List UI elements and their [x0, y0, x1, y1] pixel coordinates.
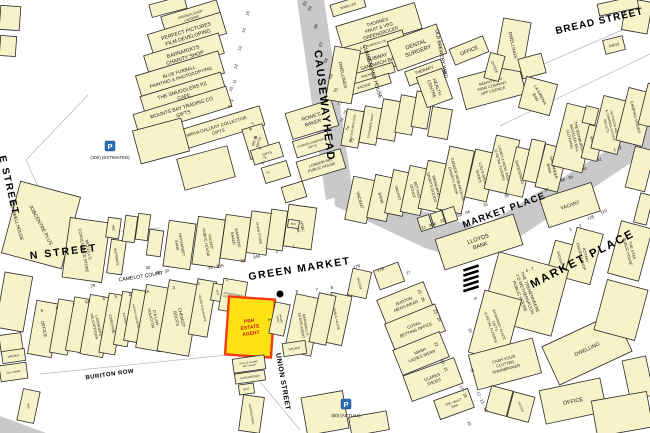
building-unlabeled [0, 5, 21, 30]
street-number: 7 [315, 287, 319, 292]
building-old-bank: OLD BANK [0, 362, 28, 382]
goad-retail-map: FASHION SHOPLINGERIEPERFECT PICTURESFILM… [0, 0, 650, 433]
junction-dot-marker [277, 291, 284, 298]
building-unlabeled [634, 193, 650, 225]
building-office: OFFICE [449, 36, 489, 65]
street-number: 34A [253, 253, 261, 259]
street-number: 30 [145, 265, 151, 271]
street-number: 10 - 11 [228, 78, 238, 92]
street-label-union-street: UNION STREET [274, 353, 291, 412]
building-vac: VAC [106, 217, 122, 239]
street-label-camelot-court: CAMELOT COURT [118, 270, 164, 283]
building-dwgs: DWGS [603, 36, 626, 54]
building-vacant-public-house: VACANTPUBLIC HOUSE [192, 216, 225, 267]
building-haymarket-bank: HAYMARKETBANK [163, 220, 196, 269]
street-label-buriton-row: BURITON ROW [85, 369, 134, 382]
building-vacant: VACANT [282, 340, 307, 356]
street-number: 27B [352, 263, 361, 270]
street-label-green-market: GREEN MARKET [248, 255, 352, 283]
highlighted-building-prh-estate-agent[interactable]: PRHESTATEAGENT [225, 296, 275, 357]
parking-count-label: (100) (ESTIMATED) [90, 155, 130, 160]
building-hairdressing: HAIRDRESSING [239, 395, 265, 433]
building-unlabeled [146, 229, 163, 257]
building-entrance: ENTRANCE [107, 239, 127, 275]
parking-icon: P(100) (ESTIMATED) [90, 141, 130, 160]
building-unlabeled [281, 181, 307, 203]
street-number: 3 [569, 227, 574, 233]
building-unlabeled [428, 106, 453, 139]
street-number: 119 [599, 208, 608, 215]
street-number: 16 [466, 420, 473, 427]
street-number: 12 [232, 63, 239, 70]
building-vac: VAC [17, 389, 40, 424]
street-number: 27 [405, 269, 412, 276]
street-number: 14 [240, 27, 247, 34]
building-unlabeled [301, 391, 349, 433]
street-number: 13 [236, 45, 243, 52]
building-unlabeled [594, 279, 648, 340]
street-number: 6 [295, 289, 299, 294]
street-number: 35 [482, 201, 489, 208]
street-number: 2 [579, 223, 584, 229]
building-unlabeled [177, 146, 236, 190]
parking-count-label: (50) (ACTUAL) [331, 413, 361, 418]
street-number: 8 [330, 285, 334, 290]
street-number: 15 [244, 10, 251, 17]
building-ent: ENT [238, 383, 254, 395]
street-number: 118 [586, 214, 595, 221]
svg-text:P: P [107, 142, 112, 151]
street-number: 9 [473, 296, 479, 301]
building-ent: ENT [287, 219, 299, 228]
building-label: ENT [243, 387, 250, 392]
street-number: 29 [90, 283, 96, 289]
building-unlabeled [0, 272, 33, 332]
building-label: ENT [290, 222, 296, 227]
svg-text:P: P [343, 400, 348, 409]
building-unlabeled [0, 35, 17, 56]
building-vacant: VACANT [347, 268, 371, 298]
building-la-sirena-bar: LA SIRENABAR [518, 76, 557, 115]
street-number: 10 [467, 327, 474, 334]
building-jeweller: JEWELLER [330, 0, 366, 17]
building-unlabeled [373, 262, 404, 290]
building-the-vault-bar: THE VAULTBAR [434, 388, 475, 419]
